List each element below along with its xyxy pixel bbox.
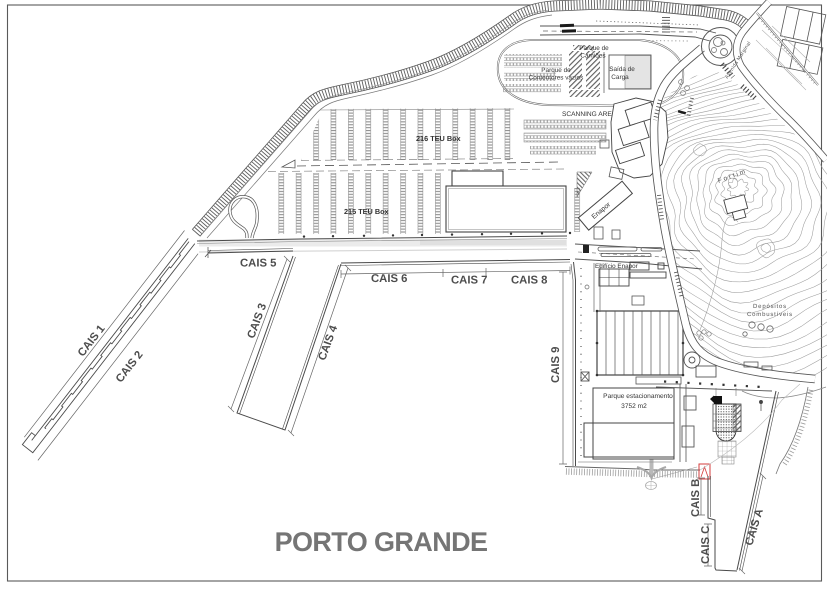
svg-text:CAIS 5: CAIS 5 <box>240 258 276 270</box>
svg-text:CAIS B: CAIS B <box>690 479 702 517</box>
svg-text:3752 m2: 3752 m2 <box>621 403 647 410</box>
svg-text:CAIS 8: CAIS 8 <box>511 275 547 287</box>
svg-text:215 TEU Box: 215 TEU Box <box>344 207 389 216</box>
svg-text:Parque de: Parque de <box>579 45 609 52</box>
svg-text:Parque de: Parque de <box>541 67 571 74</box>
svg-text:CAIS 9: CAIS 9 <box>550 347 562 383</box>
svg-text:Depósitos: Depósitos <box>753 303 787 310</box>
svg-text:CAIS C: CAIS C <box>700 526 712 564</box>
svg-text:CAIS 6: CAIS 6 <box>371 273 407 285</box>
svg-text:CAIS 7: CAIS 7 <box>451 275 487 287</box>
svg-text:Combustíveis: Combustíveis <box>747 311 793 318</box>
svg-text:PORTO GRANDE: PORTO GRANDE <box>275 527 488 557</box>
svg-text:Carga: Carga <box>611 74 629 81</box>
svg-text:Saída de: Saída de <box>609 66 635 73</box>
svg-text:216 TEU Box: 216 TEU Box <box>416 134 461 143</box>
svg-text:Parque estacionamento: Parque estacionamento <box>603 393 673 400</box>
svg-text:SCANNING AREA: SCANNING AREA <box>562 111 617 118</box>
svg-text:Camiões: Camiões <box>580 53 605 60</box>
